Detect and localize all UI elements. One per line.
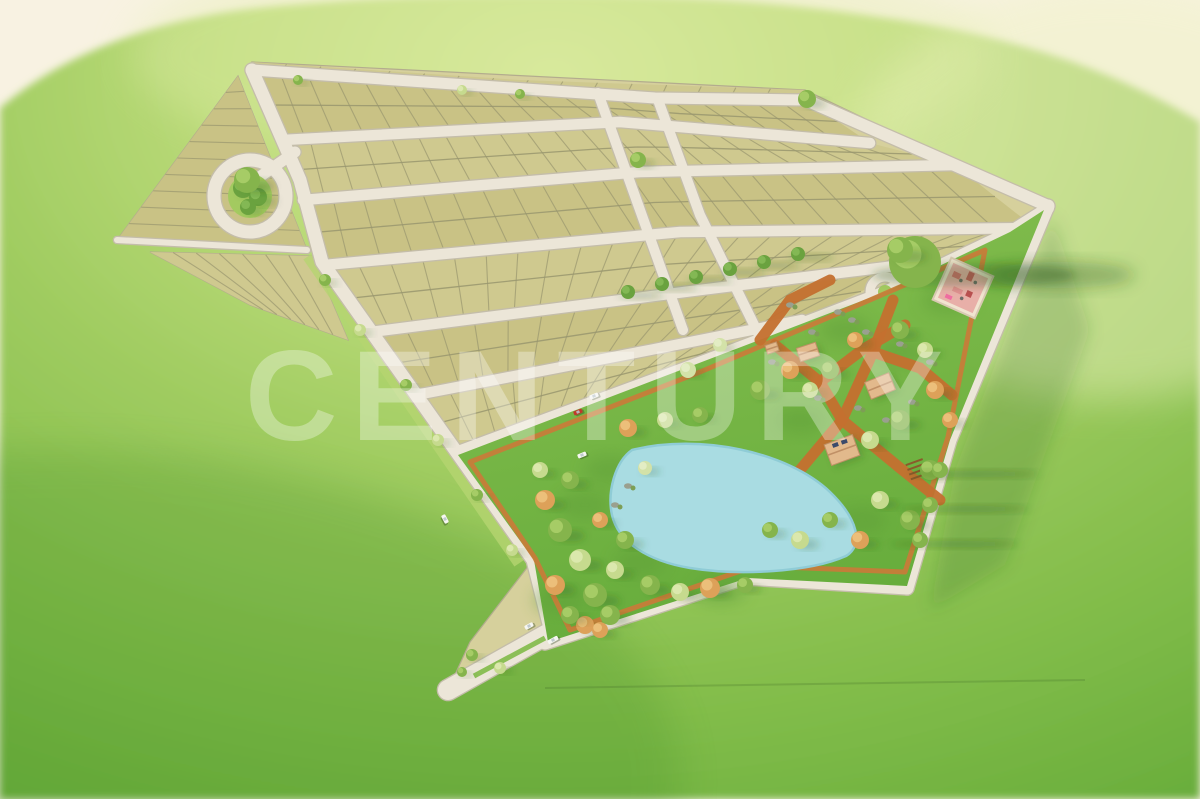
- tree-highlight: [889, 239, 903, 253]
- tree-highlight: [872, 492, 882, 502]
- tree-highlight: [672, 584, 682, 594]
- masterplan-render: CENTURY: [0, 0, 1200, 799]
- tree-highlight: [537, 492, 548, 503]
- tree-highlight: [241, 200, 250, 209]
- tree-highlight: [763, 523, 772, 532]
- tree-long-shadow: [985, 262, 1135, 288]
- tree-highlight: [320, 275, 327, 282]
- tree-highlight: [458, 86, 464, 92]
- tree-highlight: [472, 490, 479, 497]
- tree-highlight: [602, 607, 613, 618]
- tree-highlight: [724, 263, 732, 271]
- tree-highlight: [550, 520, 563, 533]
- tree-highlight: [562, 472, 572, 482]
- tree-highlight: [913, 533, 922, 542]
- tree-shadow: [910, 470, 1039, 477]
- tree-highlight: [758, 256, 766, 264]
- tree-highlight: [656, 278, 664, 286]
- tree-highlight: [562, 607, 572, 617]
- tree-highlight: [507, 545, 514, 552]
- tree-highlight: [902, 512, 913, 523]
- tree-highlight: [823, 513, 832, 522]
- tree-highlight: [547, 577, 558, 588]
- tree-highlight: [236, 169, 250, 183]
- tree-highlight: [593, 513, 602, 522]
- tree-shadow: [900, 505, 1029, 512]
- tree-highlight: [294, 76, 300, 82]
- masterplan-canvas: CENTURY: [0, 0, 1200, 799]
- tree-highlight: [738, 578, 747, 587]
- shrub: [793, 305, 798, 310]
- tree-highlight: [642, 577, 653, 588]
- tree-highlight: [467, 650, 474, 657]
- tree-highlight: [792, 532, 802, 542]
- watermark: CENTURY: [245, 325, 957, 468]
- tree-highlight: [631, 153, 640, 162]
- tree-highlight: [792, 248, 800, 256]
- tree-highlight: [690, 271, 698, 279]
- shrub: [631, 486, 636, 491]
- tree-highlight: [617, 532, 627, 542]
- shrub: [841, 312, 846, 317]
- tree-highlight: [593, 623, 602, 632]
- tree-shadow: [890, 540, 1019, 547]
- tree-highlight: [622, 286, 630, 294]
- tree-highlight: [799, 91, 809, 101]
- tree-highlight: [516, 90, 522, 96]
- tree-highlight: [458, 668, 464, 674]
- tree-highlight: [923, 498, 932, 507]
- tree-highlight: [571, 551, 583, 563]
- tree-highlight: [607, 562, 617, 572]
- tree-highlight: [495, 663, 502, 670]
- shrub: [618, 505, 623, 510]
- tree-highlight: [585, 585, 598, 598]
- tree-highlight: [852, 532, 862, 542]
- tree-highlight: [702, 580, 713, 591]
- shrub: [855, 320, 860, 325]
